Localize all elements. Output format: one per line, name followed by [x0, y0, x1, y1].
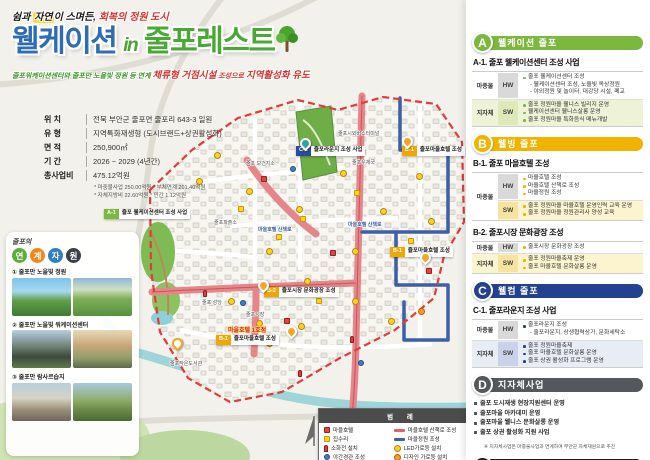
fire-hydrant-marker — [298, 370, 302, 377]
bullet: 줄포 도시재생 현장지원센터 운영 — [474, 399, 643, 409]
type-cell: SW — [498, 255, 518, 272]
info-row: 기 간2026 ~ 2029 (4년간) — [44, 156, 284, 167]
label-text: 줄포마을호텔 조성 — [231, 335, 279, 345]
circle-letter: 연 — [12, 248, 27, 263]
bullet: 줄포 웰케이션센터 조성 — [523, 74, 643, 82]
bullet: 웰케이션센터 웰니스살롱 운영 — [523, 109, 643, 117]
subtitle-red1: 체류형 거점시설 — [152, 70, 216, 81]
info-label: 총사업비 — [44, 170, 86, 181]
info-row: 유 형지역특화재생형 (도시브랜드+상권활성화) — [44, 128, 284, 139]
bullet: 줄포 정원마을 특화음식 메뉴개발 — [523, 117, 643, 125]
tagline-red: 회복의 정원 도시 — [99, 12, 169, 23]
night-lighting-marker — [358, 360, 364, 366]
label-text: 줄포시장 문화광장 조성 — [279, 287, 339, 297]
sub-bullet: - 줄포라운지, 상생협력상가, 문화세탁소 — [523, 330, 643, 338]
table-row: 마중물 HW 줄포 웰케이션센터 조성 - 웰케이션센터 조성, 노을빛 옥상정… — [472, 72, 643, 100]
info-value: 475.12억원 — [86, 170, 130, 181]
poster: 쉼과 자연이 스며든, 회복의 정원 도시 웰케이션 in 줄포레스트 줄포워케… — [0, 0, 650, 460]
info-row: 면 적250,900㎡ — [44, 142, 284, 153]
fire-hydrant-marker — [350, 336, 354, 343]
table-row: HW 마을호텔 조성 마을호텔 산책로 조성 마을정원 조성 — [498, 173, 643, 201]
led-streetlight-icon — [394, 445, 401, 452]
resources-title-circles: 연 계 자 원 — [12, 248, 133, 263]
info-row: 총사업비475.12억원 — [44, 170, 284, 181]
bullet: 줄포라운지 조성 — [523, 322, 643, 330]
section-e-badge: E — [472, 456, 493, 460]
led-streetlight-marker — [416, 173, 423, 180]
info-label: 기 간 — [44, 156, 86, 167]
night-lighting-marker — [290, 166, 296, 172]
bullet: 줄포 상권 활성화 지원 사업 — [474, 428, 643, 438]
label-text: 줄포마을호텔 조성 — [417, 146, 465, 156]
info-row: 위 치전북 부안군 줄포면 줄포리 643-3 일원 — [44, 114, 284, 125]
house-repair-marker — [316, 298, 322, 304]
table-row: SW 줄포 정원마을 마을호텔 운영인력 교육 운영 줄포 정원마을 정원관리사… — [498, 201, 643, 220]
type-cell: HW — [498, 321, 518, 338]
bullet: 줄포 마을호텔 문화살롱 운영 — [523, 264, 643, 272]
type-cell: SW — [498, 202, 518, 219]
village-hotel-marker — [426, 268, 432, 274]
led-streetlight-marker — [228, 298, 235, 305]
legend-label: 소화전 설치 — [331, 444, 358, 452]
photo — [12, 278, 71, 316]
table-row: 마중물 HW 줄포시장 문화광장 조성 — [472, 242, 643, 255]
tagline-mid: 이 스며든, — [54, 12, 99, 23]
sub-bullet: - 웰케이션센터 조성, 노을빛 옥상정원 — [523, 82, 643, 90]
info-value: 지역특화재생형 (도시브랜드+상권활성화) — [86, 128, 222, 139]
actor-cell: 마중물 — [472, 72, 498, 99]
legend-label: 야간경관 조성 — [333, 453, 365, 460]
table-row: 지자체 SW 줄포 정원마을축제 줄포 마을호텔 문화살롱 운영 줄포 상권 활… — [472, 341, 643, 368]
photo-caption: ② 줄포만 노을빛 워케이션센터 — [12, 320, 133, 329]
section-c-title: 웰컴 줄포 — [485, 284, 643, 298]
design-streetlight-marker — [418, 308, 425, 315]
place-hotel-trail: 마을호텔 산책로 — [258, 226, 292, 233]
led-streetlight-marker — [304, 278, 311, 285]
led-streetlight-marker — [266, 248, 273, 255]
sub-bullet: - 야외정원 및 놀이터, 대강당 시설, 폐교 — [523, 89, 643, 97]
legend-item: LED가로등 설치 — [394, 444, 476, 452]
circle-letter: 계 — [30, 248, 45, 263]
info-label: 위 치 — [44, 114, 86, 125]
legend-title: 범 례 — [319, 409, 481, 423]
place-bus-terminal: 줄포시외버스터미널 — [338, 130, 379, 137]
label-tag: B-1 — [402, 146, 417, 156]
photo — [12, 330, 71, 368]
night-lighting-marker — [240, 300, 246, 306]
house-repair-marker — [238, 206, 244, 212]
actor-cell: 지자체 — [472, 254, 498, 273]
circle-letter: 원 — [66, 248, 81, 263]
photo — [12, 383, 71, 421]
linked-resources-panel: 줄포의 연 계 자 원 ① 줄포만 노을빛 정원 ② 줄포만 노을빛 워케이션센… — [6, 232, 139, 456]
legend-item: 소화전 설치 — [324, 444, 390, 452]
label-tag: A-1 — [104, 209, 119, 219]
legend-label: 집수리 — [333, 435, 348, 443]
night-lighting-icon — [324, 454, 330, 460]
subtitle: 줄포워케이션센터와 줄포만 노을빛 정원 등 연계 체류형 거점시설 조성으로 … — [12, 65, 462, 83]
led-streetlight-marker — [298, 323, 305, 330]
project-info: 위 치전북 부안군 줄포면 줄포리 643-3 일원 유 형지역특화재생형 (도… — [44, 114, 284, 201]
title-in: in — [123, 35, 137, 56]
title-wellcation: 웰케이션 — [12, 25, 116, 58]
map-label-hotel1: 마을호텔 1호점 — [228, 325, 266, 334]
section-a1-table: 마중물 HW 줄포 웰케이션센터 조성 - 웰케이션센터 조성, 노을빛 옥상정… — [472, 71, 643, 127]
tagline-pre: 쉼과 — [12, 12, 33, 23]
bullet: 줄포 정원마을축제 운영 — [523, 256, 643, 264]
actor-cell: 지자체 — [472, 100, 498, 127]
photo-caption: ① 줄포만 노을빛 정원 — [12, 267, 133, 276]
legend-label: 디자인 가로등 설치 — [404, 453, 448, 460]
led-streetlight-marker — [388, 318, 395, 325]
design-streetlight-icon — [394, 454, 401, 460]
section-c1-heading: C-1. 줄포라운지 조성 사업 — [473, 305, 643, 316]
section-a1-heading: A-1. 줄포 웰케이션센터 조성 사업 — [473, 57, 643, 68]
bullet: 줄포 정원마을 웰니스 빌리지 운영 — [523, 102, 643, 110]
legend-label: 마을호텔 — [333, 426, 353, 434]
bullet: 줄포 마을호텔 문화살롱 운영 — [523, 350, 643, 358]
map-legend: 범 례 마을호텔 마을호텔 산책로 조성 집수리 마을정원 조성 소화전 설치 … — [318, 408, 482, 460]
section-a-badge: A — [472, 32, 493, 53]
section-c-badge: C — [472, 280, 493, 301]
photo — [73, 383, 132, 421]
type-cell: HW — [498, 174, 518, 199]
resource-item: ② 줄포만 노을빛 워케이션센터 — [12, 320, 133, 369]
legend-item: 야간경관 조성 — [324, 453, 390, 460]
bullet: 마을호텔 조성 — [523, 175, 643, 183]
label-text: 줄포라운지 조성 사업 — [311, 146, 366, 156]
place-market: 줄포시장 — [246, 311, 264, 318]
village-garden-line-icon — [394, 438, 405, 441]
section-b-title: 웰빙 줄포 — [485, 137, 643, 151]
info-value: 250,900㎡ — [86, 142, 128, 153]
tagline-highlight: 자연 — [33, 12, 53, 23]
fire-hydrant-marker — [203, 290, 207, 297]
section-d-list: 줄포 도시재생 현장지원센터 운영 줄포마을 아카데미 운영 줄포마을 웰니스 … — [474, 399, 643, 437]
table-row: 지자체 SW 줄포 정원마을 웰니스 빌리지 운영 웰케이션센터 웰니스살롱 운… — [472, 100, 643, 127]
photo — [73, 278, 132, 316]
led-streetlight-marker — [340, 170, 347, 177]
map-label-b1: B-1줄포마을호텔 조성 — [402, 146, 465, 156]
bullet: 줄포마을 아카데미 운영 — [474, 409, 643, 419]
actor-cell: 마중물 — [472, 320, 498, 339]
led-streetlight-marker — [380, 208, 387, 215]
house-repair-marker — [354, 190, 360, 196]
led-streetlight-marker — [428, 218, 435, 225]
label-text: 줄포 웰케이션센터 조성 사업 — [119, 209, 190, 219]
map-label-a1: A-1줄포 웰케이션센터 조성 사업 — [104, 209, 190, 219]
house-repair-marker — [300, 216, 306, 222]
budget-note: * 마중물사업 250.00억원 * 부처연계 201.40억원 — [94, 184, 284, 192]
photo — [73, 330, 132, 368]
info-value: 2026 ~ 2029 (4년간) — [86, 156, 160, 167]
place-hotel-trail: 마을호텔 산책로 — [348, 221, 382, 228]
legend-item: 마을호텔 산책로 조성 — [394, 426, 476, 434]
section-e-header: E부처연계사업 — [472, 456, 643, 460]
page-title: 웰케이션 in 줄포레스트 — [12, 25, 462, 62]
section-b1-heading: B-1. 줄포 마을호텔 조성 — [473, 158, 643, 169]
subtitle-red2: 지역활성화 유도 — [246, 70, 310, 81]
section-b1-table: 마중물 HW 마을호텔 조성 마을호텔 산책로 조성 마을정원 조성 SW 줄 — [472, 172, 643, 221]
label-tag: B-1 — [216, 335, 231, 345]
village-hotel-icon — [324, 427, 330, 433]
legend-item: 마을정원 조성 — [394, 435, 476, 443]
village-hotel-marker — [330, 250, 336, 256]
bullet: 줄포 상권 활성화 프로그램 운영 — [523, 358, 643, 366]
house-repair-marker — [408, 238, 414, 244]
type-cell: HW — [498, 243, 518, 253]
section-b2-heading: B-2. 줄포시장 문화광장 조성 — [473, 227, 643, 238]
section-d-header: D지자체사업 — [472, 374, 643, 395]
place-library: 줄포작은도서관 — [170, 360, 202, 367]
info-label: 면 적 — [44, 142, 86, 153]
map-label-b2: B-2줄포시장 문화광장 조성 — [264, 287, 339, 297]
info-value: 전북 부안군 줄포면 줄포리 643-3 일원 — [86, 114, 212, 125]
info-label: 유 형 — [44, 128, 86, 139]
section-d-title: 지자체사업 — [485, 378, 643, 392]
tree-icon — [276, 25, 298, 62]
section-a-title: 웰케이션 줄포 — [485, 36, 643, 50]
bullet: 마을정원 조성 — [523, 190, 643, 198]
fire-hydrant-icon — [324, 445, 328, 452]
section-b-header: B웰빙 줄포 — [472, 133, 643, 154]
tagline: 쉼과 자연이 스며든, 회복의 정원 도시 — [12, 8, 462, 23]
section-b2-table: 마중물 HW 줄포시장 문화광장 조성 지자체 SW 줄포 정원마을축제 운영 … — [472, 241, 643, 275]
led-streetlight-marker — [296, 206, 303, 213]
resource-item: ③ 줄포만 람사르습지 — [12, 372, 133, 421]
bullet: 줄포 정원마을 정원관리사 양성 교육 — [523, 210, 643, 218]
bullet: 줄포마을 웰니스 문화살롱 운영 — [474, 418, 643, 428]
section-c-header: C웰컴 줄포 — [472, 280, 643, 301]
actor-cell: 마중물 — [472, 242, 498, 254]
resources-script: 줄포의 — [12, 237, 133, 247]
map-label-b1: B-1줄포마을호텔 조성 — [216, 335, 279, 345]
section-a-header: A웰케이션 줄포 — [472, 32, 643, 53]
house-repair-marker — [276, 234, 282, 240]
legend-label: LED가로등 설치 — [404, 444, 442, 452]
section-d-badge: D — [472, 374, 493, 395]
section-d-note: ※ 지자체사업은 마중물사업과 연계하여 부안군 자체재원으로 추진 — [484, 443, 643, 450]
header: 쉼과 자연이 스며든, 회복의 정원 도시 웰케이션 in 줄포레스트 줄포워케… — [12, 8, 462, 83]
led-streetlight-marker — [352, 248, 359, 255]
table-row: 마중물 HW 줄포라운지 조성 - 줄포라운지, 상생협력상가, 문화세탁소 — [472, 320, 643, 340]
house-repair-icon — [324, 436, 330, 442]
legend-label: 마을호텔 산책로 조성 — [408, 426, 457, 434]
subtitle-red-small: 조성으로 — [216, 73, 246, 80]
table-row: 지자체 SW 줄포 정원마을축제 운영 줄포 마을호텔 문화살롱 운영 — [472, 254, 643, 273]
hotel-trail-line-icon — [394, 429, 405, 432]
place-police-box: 줄포파출소 — [214, 219, 237, 226]
led-streetlight-marker — [352, 298, 359, 305]
budget-note: * 자체지방비 22.60억원 * 민간 1.12억원 — [94, 192, 284, 200]
label-tag: B-1 — [390, 247, 405, 257]
project-list-panel: A웰케이션 줄포 A-1. 줄포 웰케이션센터 조성 사업 마중물 HW 줄포 … — [466, 0, 650, 460]
bullet: 줄포시장 문화광장 조성 — [523, 244, 643, 252]
title-julpoforest: 줄포레스트 — [144, 25, 275, 58]
place-post-office: 줄포우체국 — [352, 159, 375, 166]
subtitle-green: 줄포워케이션센터와 줄포만 노을빛 정원 등 연계 — [12, 73, 152, 80]
circle-letter: 자 — [48, 248, 63, 263]
legend-item: 마을호텔 — [324, 426, 390, 434]
resource-item: ① 줄포만 노을빛 정원 — [12, 267, 133, 316]
photo-caption: ③ 줄포만 람사르습지 — [12, 372, 133, 381]
type-cell: SW — [498, 342, 518, 367]
place-cathedral: 줄포 성당 — [202, 299, 222, 306]
legend-item: 디자인 가로등 설치 — [394, 453, 476, 460]
legend-label: 마을정원 조성 — [408, 435, 440, 443]
type-cell: SW — [498, 101, 518, 126]
actor-cell: 마중물 — [472, 173, 498, 220]
section-b-badge: B — [472, 133, 493, 154]
type-cell: HW — [498, 73, 518, 98]
section-c1-table: 마중물 HW 줄포라운지 조성 - 줄포라운지, 상생협력상가, 문화세탁소 지… — [472, 319, 643, 368]
village-hotel-marker — [284, 318, 290, 324]
actor-cell: 지자체 — [472, 341, 498, 368]
bullet: 줄포 정원마을축제 — [523, 343, 643, 351]
legend-item: 집수리 — [324, 435, 390, 443]
